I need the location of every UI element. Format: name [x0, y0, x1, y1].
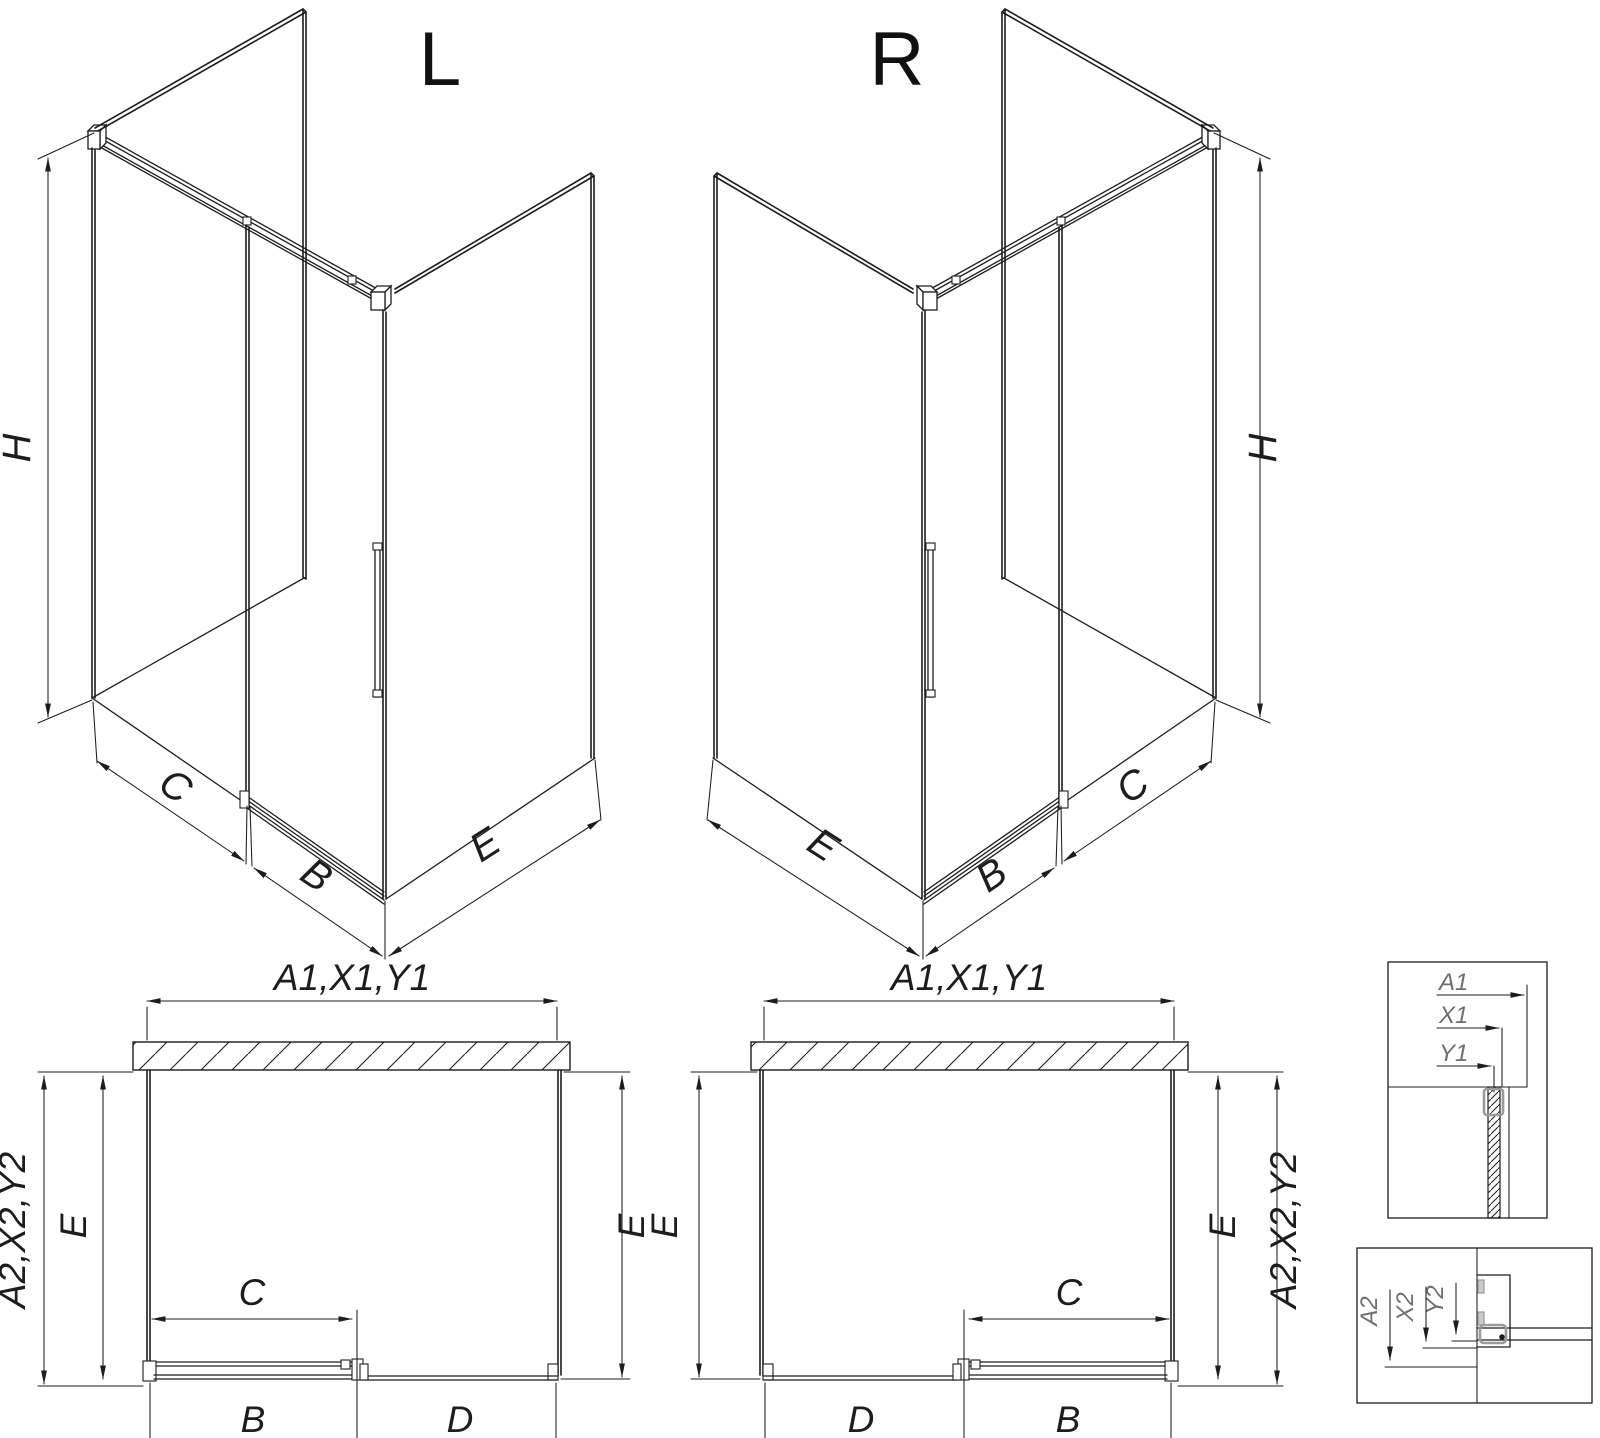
dim-label-e-right-iso: E: [800, 819, 847, 871]
dim-label-b-right-iso: B: [968, 850, 1015, 901]
isometric-view-left: L H C B E: [0, 9, 601, 959]
view-title-l: L: [419, 17, 461, 102]
dim-label-b-left-iso: B: [293, 850, 340, 901]
plan-view-left: A1,X1,Y1 E A2,X2,Y2 E C B D: [0, 957, 652, 1438]
dim-label-a1x1y1-left-plan: A1,X1,Y1: [272, 957, 430, 998]
shower-enclosure-dimension-drawing: L H C B E R H C B E A1,X1,Y1 E A2,X2,Y2 …: [0, 0, 1600, 1438]
dim-label-d-right-plan: D: [848, 1399, 875, 1438]
dim-label-c-left-plan: C: [239, 1272, 266, 1313]
dim-label-e-left-iso: E: [462, 819, 509, 871]
dim-label-e-inner-left-plan: E: [53, 1212, 94, 1238]
dim-label-b-right-plan: B: [1056, 1399, 1081, 1438]
plan-view-right: A1,X1,Y1 E E A2,X2,Y2 C B D: [644, 957, 1304, 1438]
detail-floor-rail: A2 X2 Y2: [1356, 1248, 1592, 1403]
technical-drawing-page: L H C B E R H C B E A1,X1,Y1 E A2,X2,Y2 …: [0, 0, 1600, 1438]
detail-label-x1: X1: [1438, 1002, 1468, 1029]
dim-label-e-outer-right-plan: E: [644, 1212, 685, 1238]
view-title-r: R: [870, 17, 925, 102]
detail-wall-profile: A1 X1 Y1: [1388, 962, 1547, 1218]
detail-label-y2: Y2: [1422, 1285, 1449, 1314]
dim-label-a2x2y2-left-plan: A2,X2,Y2: [0, 1151, 33, 1310]
dim-label-h-left-iso: H: [0, 433, 39, 462]
detail-label-a2: A2: [1356, 1296, 1383, 1327]
detail-label-y1: Y1: [1439, 1040, 1468, 1067]
detail-label-x2: X2: [1392, 1292, 1419, 1322]
wall-section-right-plan: [751, 1042, 1188, 1070]
detail-label-a1: A1: [1437, 969, 1468, 996]
dim-label-a1x1y1-right-plan: A1,X1,Y1: [889, 957, 1047, 998]
dim-label-e-inner-right-plan: E: [1202, 1212, 1243, 1238]
dim-label-a2x2y2-right-plan: A2,X2,Y2: [1263, 1151, 1304, 1310]
dim-label-c-right-plan: C: [1056, 1272, 1083, 1313]
wall-section-left-plan: [133, 1042, 570, 1070]
dim-label-d-left-plan: D: [447, 1399, 474, 1438]
isometric-view-right: R H C B E: [707, 9, 1285, 959]
dim-label-h-right-iso: H: [1241, 433, 1285, 462]
dim-label-b-left-plan: B: [241, 1399, 266, 1438]
